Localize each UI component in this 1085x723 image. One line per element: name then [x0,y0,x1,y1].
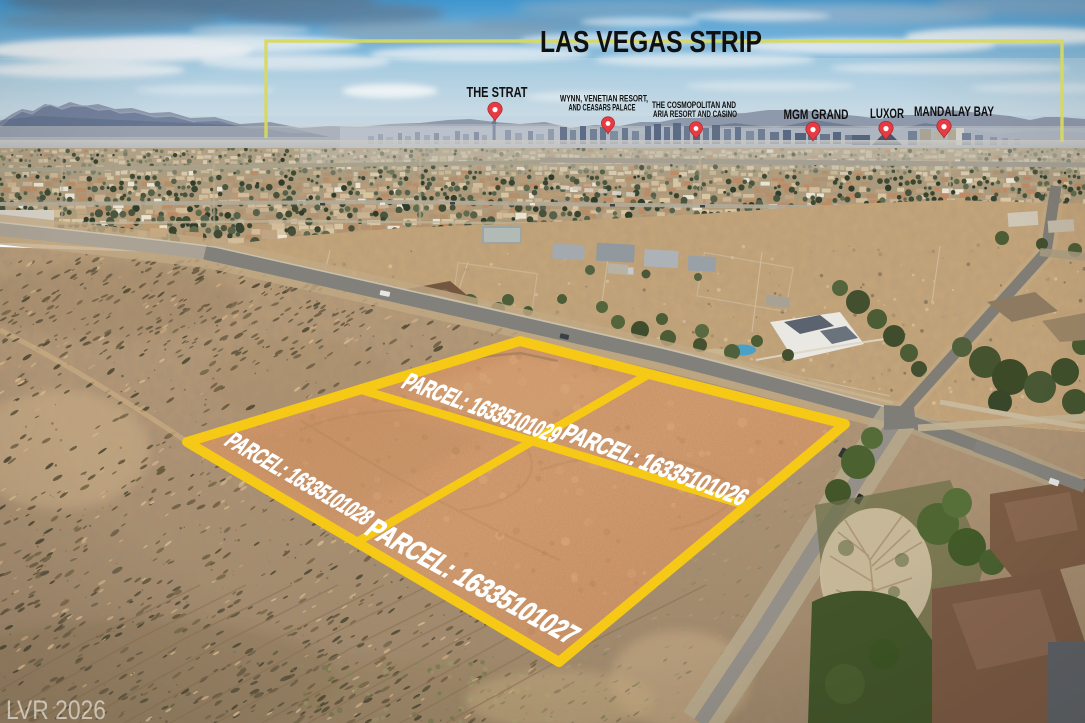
svg-text:LVR 2026: LVR 2026 [6,695,106,723]
svg-text:MGM GRAND: MGM GRAND [784,106,849,122]
svg-text:ARIA RESORT AND CASINO: ARIA RESORT AND CASINO [653,109,737,120]
svg-text:MANDALAY BAY: MANDALAY BAY [914,103,994,119]
svg-text:THE STRAT: THE STRAT [467,84,528,101]
svg-text:LAS VEGAS STRIP: LAS VEGAS STRIP [540,24,762,59]
svg-text:LUXOR: LUXOR [870,105,904,121]
svg-text:AND CEASARS PALACE: AND CEASARS PALACE [569,103,636,114]
